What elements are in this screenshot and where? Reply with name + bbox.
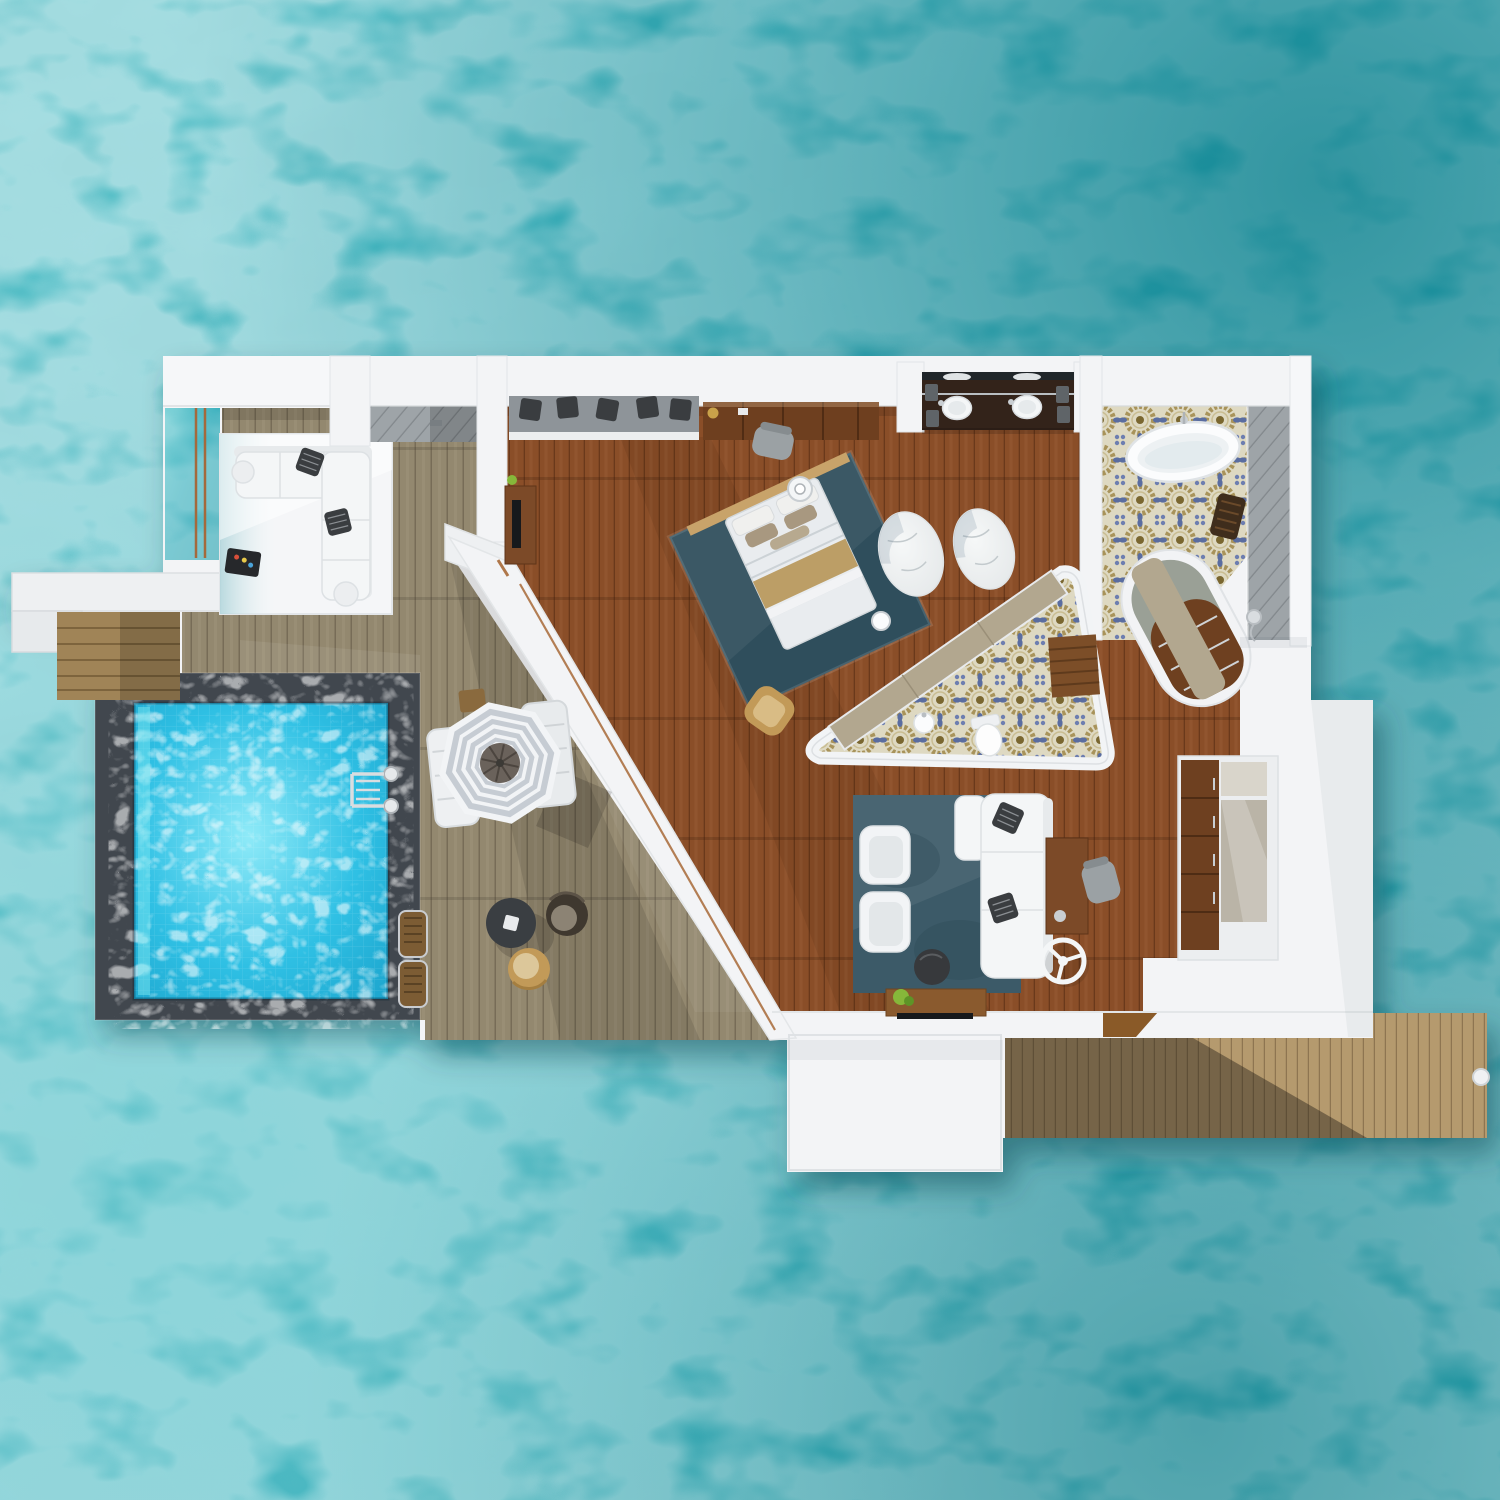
bench-front (509, 432, 699, 440)
table-lamp (708, 408, 719, 419)
vanity-kick-shadow (922, 428, 1074, 434)
dresser-decor (738, 408, 748, 415)
coffee-cup (795, 484, 805, 494)
notch-caustics (165, 408, 220, 560)
scene-canvas (0, 0, 1500, 1500)
double-vanity (922, 372, 1074, 434)
mirror-reflection (943, 373, 971, 381)
mirror-reflection (1013, 373, 1041, 381)
pool-caustics (134, 703, 388, 999)
teak-bench (1048, 634, 1100, 697)
kitchenette (1178, 756, 1278, 960)
bathroom-right-wall (1290, 356, 1311, 646)
faucet (1008, 399, 1014, 405)
hand-shower (1247, 610, 1261, 624)
desk-top (1046, 838, 1088, 934)
sofa-armrest (232, 461, 254, 483)
speaker-tray (224, 548, 261, 577)
fan-hub (1058, 956, 1068, 966)
tv-console (886, 989, 986, 1019)
sofa-armrest (334, 582, 358, 606)
lower-deck-shade (787, 1040, 1003, 1060)
steps-shadow (120, 612, 180, 700)
basin-faucet (922, 713, 927, 718)
shower-strip-planks (1247, 368, 1290, 640)
white-bench-slab (12, 573, 222, 611)
ladder-handle (384, 767, 398, 781)
bathroom-shower-strip (1247, 368, 1290, 640)
armchair (860, 826, 910, 884)
shower-drain (430, 420, 442, 426)
green-plant-leaf (904, 996, 914, 1006)
water-notch (165, 408, 220, 560)
wall-pillar (477, 356, 507, 542)
wicker-chair-tan (508, 948, 550, 990)
top-wall-left (163, 356, 333, 408)
faucet (938, 400, 944, 406)
armchair (860, 892, 910, 952)
water-lounge (220, 434, 392, 614)
walk-in-closet (509, 396, 699, 440)
private-pool (95, 673, 427, 1020)
aerial-villa-render (0, 0, 1500, 1500)
pool-step-ledge (138, 707, 150, 995)
wall-pillar (897, 362, 924, 432)
wall-pillar (330, 356, 370, 446)
upper-shelf (1221, 762, 1267, 796)
wicker-chair-dark (546, 893, 588, 936)
desk-lamp (1054, 910, 1066, 922)
tv-screen (512, 500, 521, 548)
ladder-handle (384, 799, 398, 813)
mooring-bollard (1473, 1069, 1489, 1085)
bathroom-edge-shade (1240, 637, 1307, 648)
small-plant (507, 475, 517, 485)
cup (872, 612, 890, 630)
tv-panel (897, 1013, 973, 1019)
media-desk (505, 475, 536, 564)
dresser-top-highlight (703, 402, 879, 407)
